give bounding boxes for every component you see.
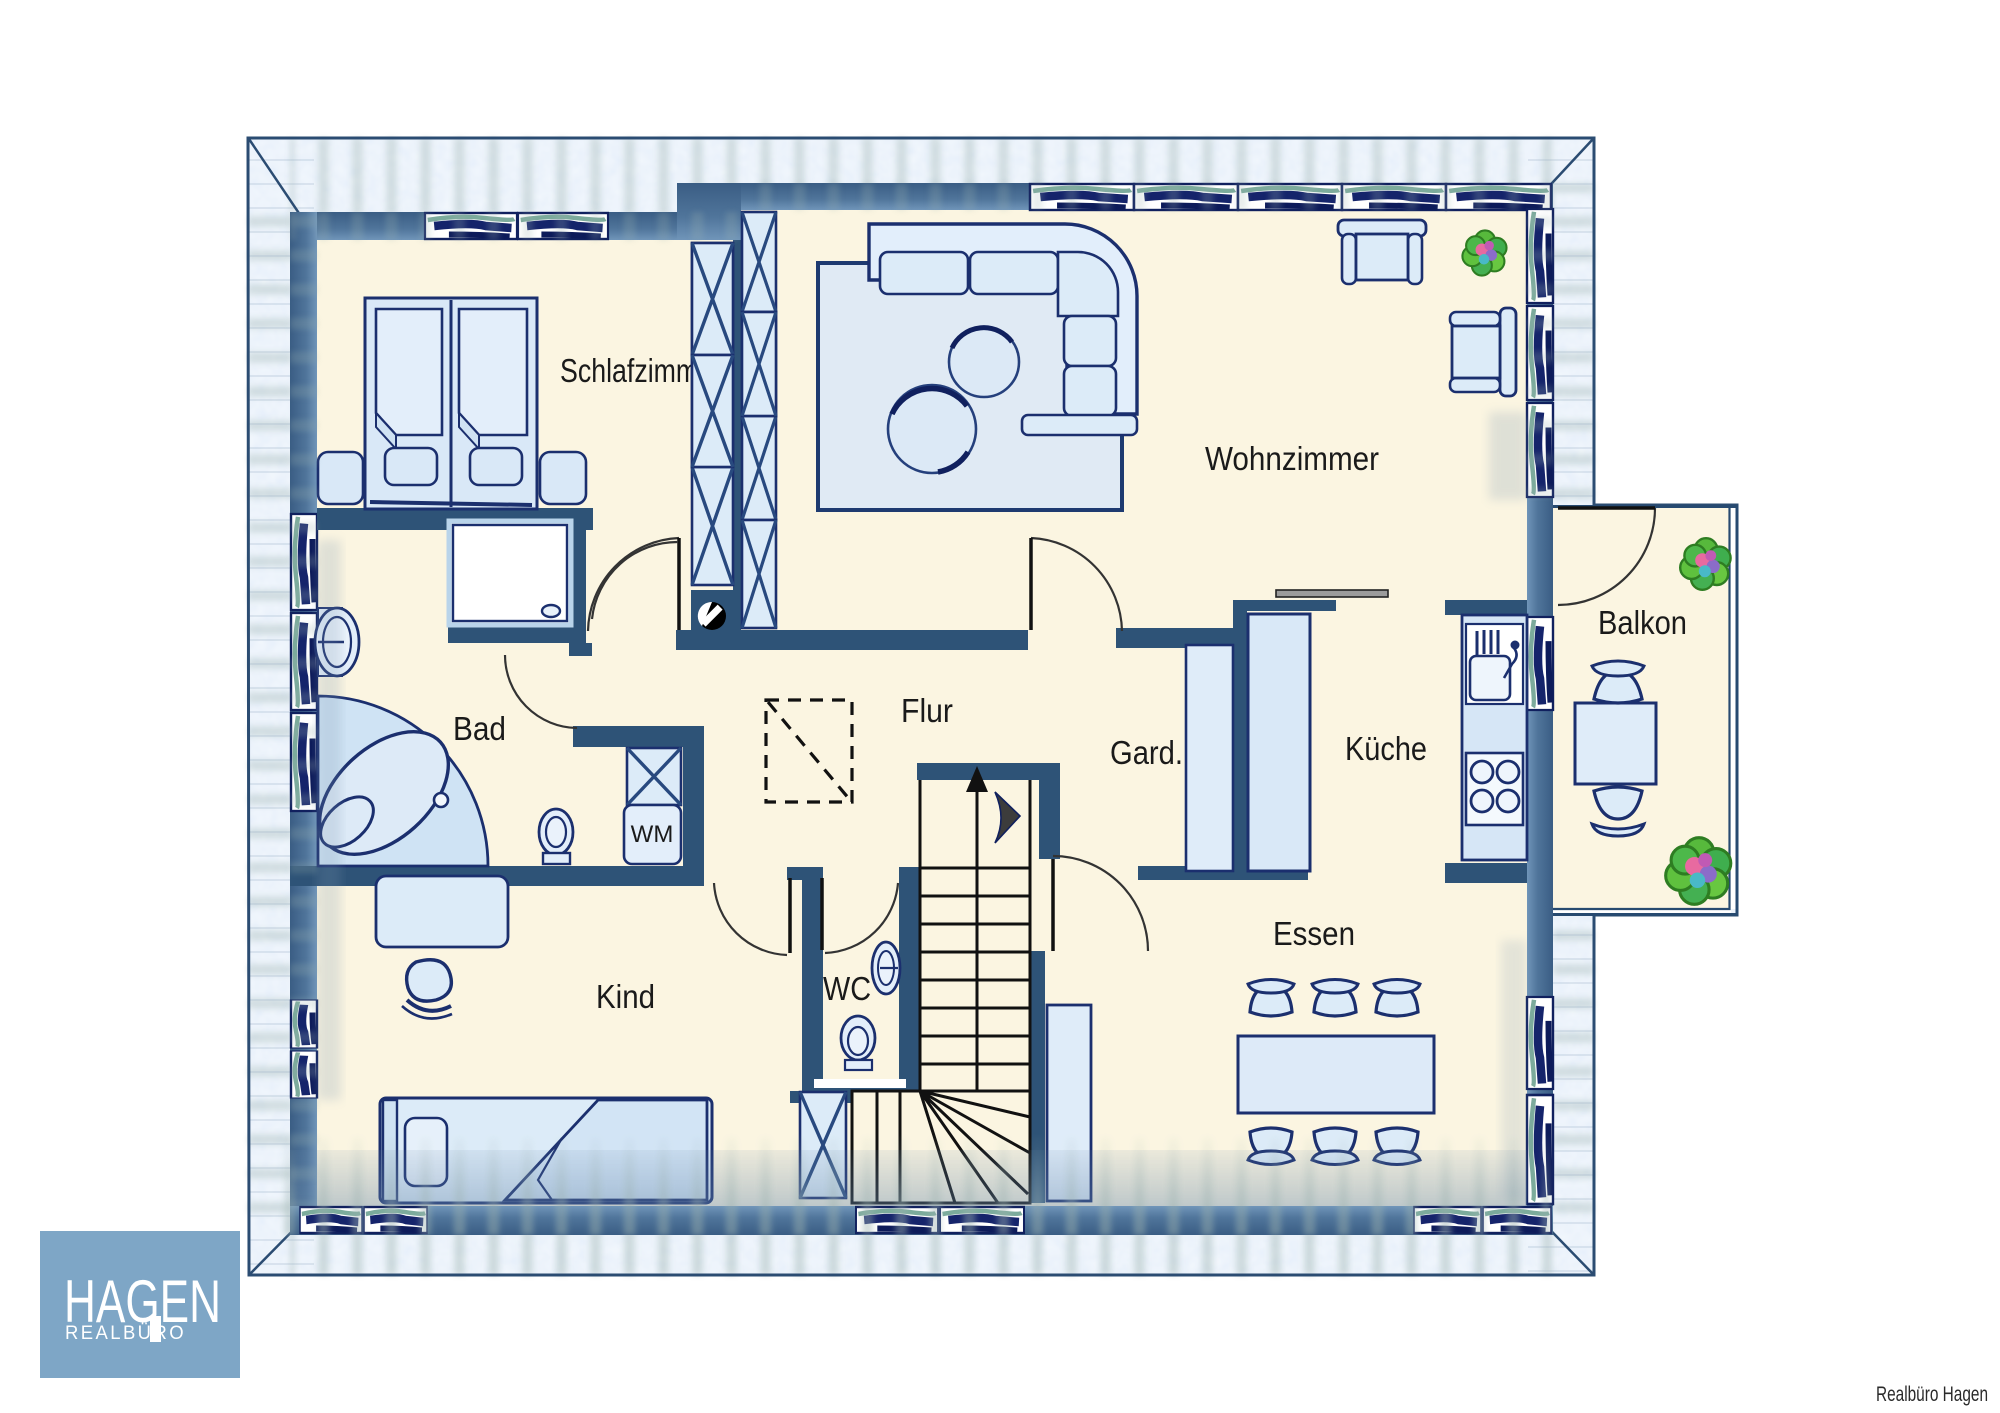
svg-text:Balkon: Balkon [1598, 604, 1687, 641]
svg-text:WC: WC [823, 970, 871, 1007]
svg-text:REALBÜRO: REALBÜRO [65, 1323, 186, 1344]
svg-text:Wohnzimmer: Wohnzimmer [1205, 440, 1379, 477]
svg-text:Bad: Bad [453, 710, 506, 747]
svg-text:Küche: Küche [1345, 730, 1427, 767]
svg-text:Kind: Kind [596, 978, 655, 1015]
svg-text:Gard.: Gard. [1110, 734, 1183, 771]
svg-text:Essen: Essen [1273, 915, 1355, 952]
svg-text:WM: WM [631, 821, 674, 848]
svg-text:Realbüro Hagen: Realbüro Hagen [1876, 1383, 1988, 1406]
svg-text:Flur: Flur [901, 692, 953, 729]
